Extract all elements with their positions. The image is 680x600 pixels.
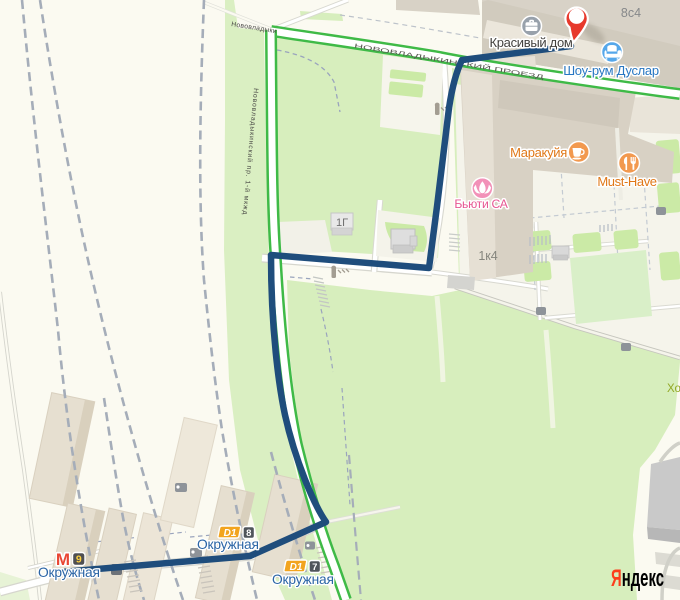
svg-text:Must-Have: Must-Have <box>597 174 656 189</box>
svg-text:Окружная: Окружная <box>197 537 259 552</box>
svg-text:Бьюти СА: Бьюти СА <box>454 197 508 211</box>
svg-text:Хо: Хо <box>667 383 680 395</box>
svg-text:Красивый дом: Красивый дом <box>489 35 572 50</box>
svg-text:Яндекс: Яндекс <box>611 565 664 592</box>
svg-text:1к4: 1к4 <box>478 249 497 263</box>
svg-text:Окружная: Окружная <box>38 565 100 580</box>
svg-text:Маракуйя: Маракуйя <box>510 145 567 160</box>
svg-text:1Г: 1Г <box>336 217 348 229</box>
svg-text:8с4: 8с4 <box>621 6 641 20</box>
svg-text:Шоу-рум Дуслар: Шоу-рум Дуслар <box>563 63 659 78</box>
svg-text:9: 9 <box>76 554 82 566</box>
svg-text:Окружная: Окружная <box>272 572 334 587</box>
